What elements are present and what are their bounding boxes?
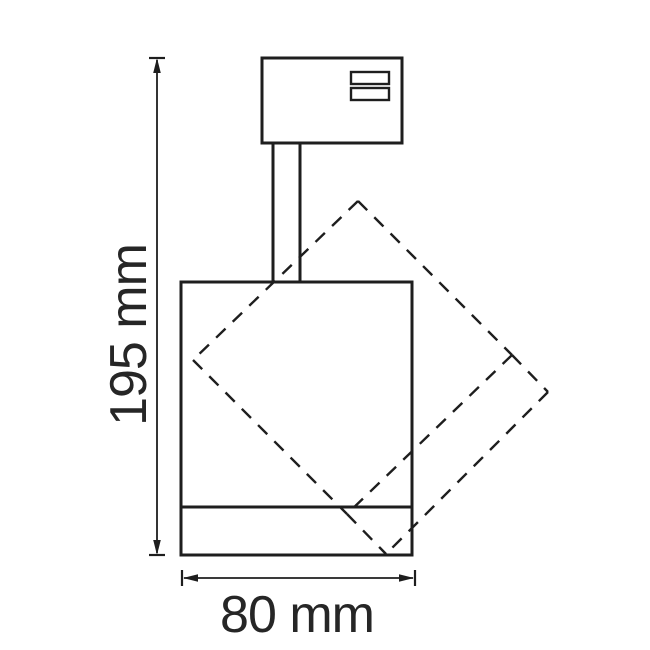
- mounting-stem: [273, 143, 300, 282]
- height-dimension-label: 195 mm: [100, 244, 158, 426]
- dimension-drawing-page: 195 mm 80 mm: [0, 0, 650, 650]
- width-dimension-label: 80 mm: [220, 586, 374, 644]
- lamp-head-body: [181, 282, 412, 555]
- arrowhead-down-icon: [153, 540, 161, 555]
- arrowhead-up-icon: [153, 58, 161, 73]
- track-spotlight-dimension-drawing: 195 mm 80 mm: [0, 0, 650, 650]
- arrowhead-right-icon: [399, 574, 414, 582]
- adapter-slot-bottom: [351, 88, 389, 100]
- height-dimension: 195 mm: [100, 58, 165, 555]
- width-dimension: 80 mm: [182, 570, 415, 644]
- dashed-connector-right: [512, 355, 548, 392]
- adapter-slot-top: [351, 72, 389, 84]
- arrowhead-left-icon: [183, 574, 198, 582]
